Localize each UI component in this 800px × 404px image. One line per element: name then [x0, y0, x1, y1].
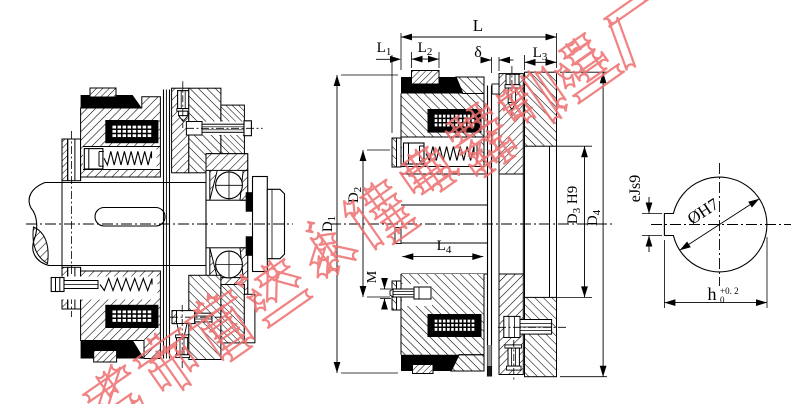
svg-text:L: L: [473, 16, 483, 35]
svg-text:M: M: [365, 270, 380, 283]
svg-text:0: 0: [720, 295, 725, 305]
svg-text:δ: δ: [474, 44, 482, 61]
svg-text:h: h: [708, 284, 717, 304]
svg-text:D3 H9: D3 H9: [565, 186, 583, 224]
svg-text:eJs9: eJs9: [627, 175, 644, 203]
